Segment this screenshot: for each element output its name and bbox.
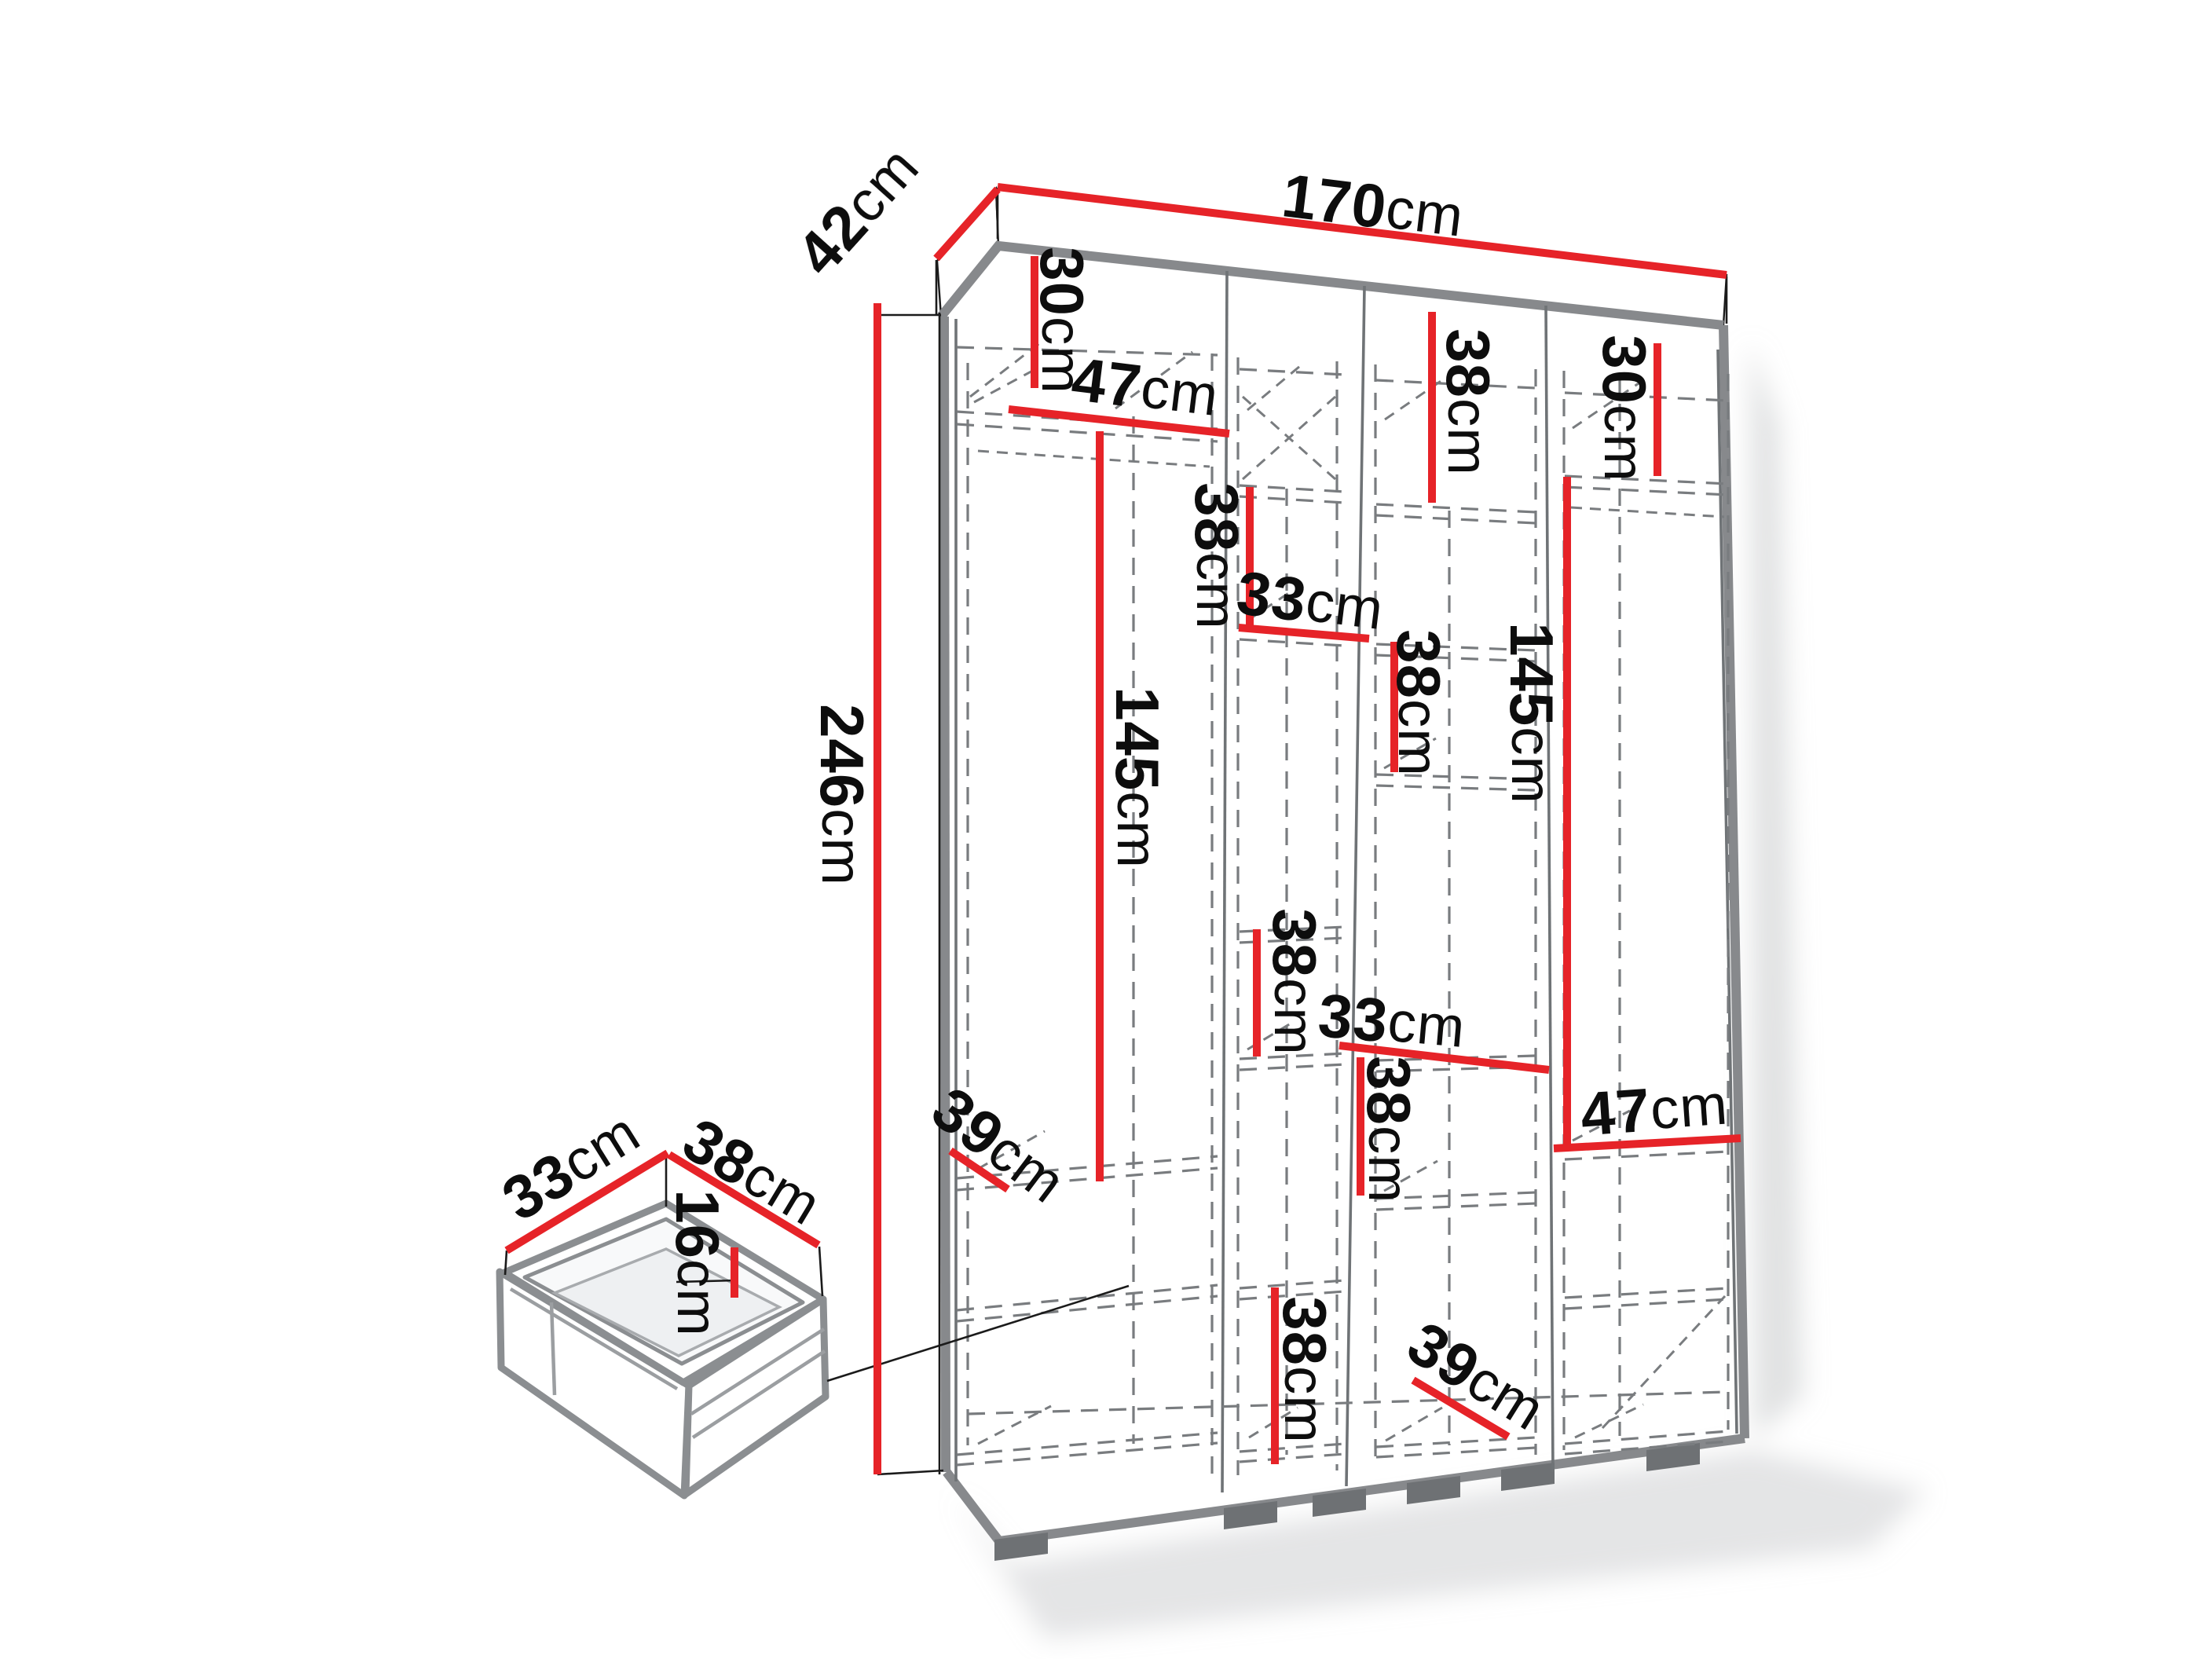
hidden-edges-dashed xyxy=(957,339,1728,1481)
dim-label-c3-39: 39cm xyxy=(1396,1308,1558,1445)
dim-label-c3-38-upper: 38cm xyxy=(1384,629,1453,776)
dim-label-c4-30: 30cm xyxy=(1590,335,1659,482)
drawer-inset-diagram xyxy=(500,1203,826,1496)
dim-label-c2-38-lower: 38cm xyxy=(1270,1296,1339,1443)
dim-label-c4-47: 47cm xyxy=(1578,1070,1730,1149)
dim-label-c1-145: 145cm xyxy=(1103,687,1172,869)
dim-label-c4-145: 145cm xyxy=(1497,622,1566,804)
dim-label-246: 246cm xyxy=(808,704,877,886)
wardrobe-dimension-diagram: 42cm 170cm 246cm 30cm 47cm 38cm 38cm 30c… xyxy=(0,0,2212,1659)
dim-label-drawer-16: 16cm xyxy=(663,1189,732,1336)
drawer-leader-line xyxy=(827,1286,1129,1381)
dim-label-c3-38-lower: 38cm xyxy=(1354,1056,1423,1203)
dimension-labels: 42cm 170cm 246cm 30cm 47cm 38cm 38cm 30c… xyxy=(490,133,1730,1445)
dim-label-c3-33: 33cm xyxy=(1316,980,1468,1062)
diagram-page: 42cm 170cm 246cm 30cm 47cm 38cm 38cm 30c… xyxy=(0,0,2212,1659)
dim-label-42: 42cm xyxy=(783,133,933,288)
dim-label-c3-38-top: 38cm xyxy=(1434,328,1503,475)
